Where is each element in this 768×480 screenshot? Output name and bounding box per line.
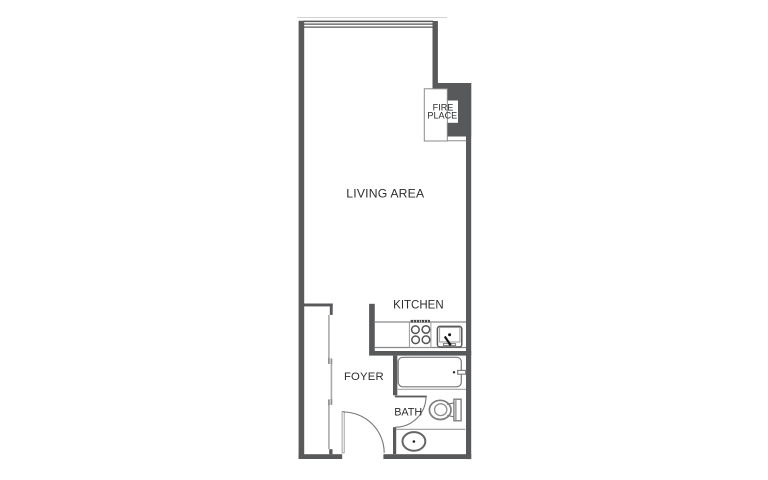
svg-text:FOYER: FOYER	[344, 371, 384, 383]
svg-text:LIVING AREA: LIVING AREA	[346, 187, 425, 201]
svg-text:PLACE: PLACE	[427, 111, 457, 121]
svg-text:BATH: BATH	[394, 406, 422, 418]
svg-text:KITCHEN: KITCHEN	[393, 299, 443, 311]
